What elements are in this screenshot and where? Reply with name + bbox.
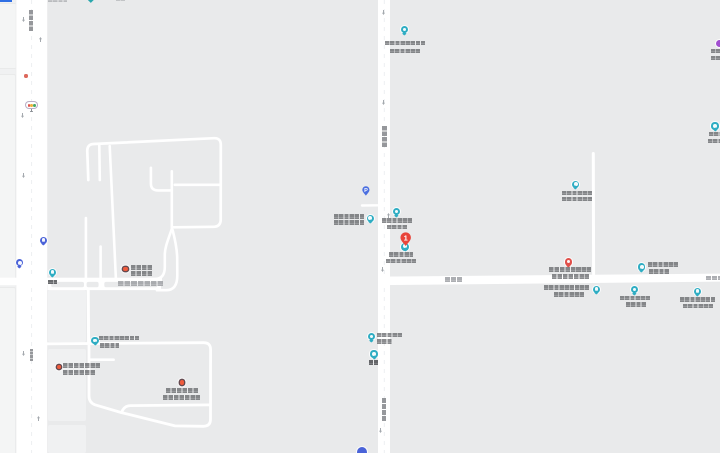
svg-text:1: 1	[404, 233, 408, 242]
svg-text:P: P	[364, 188, 368, 194]
